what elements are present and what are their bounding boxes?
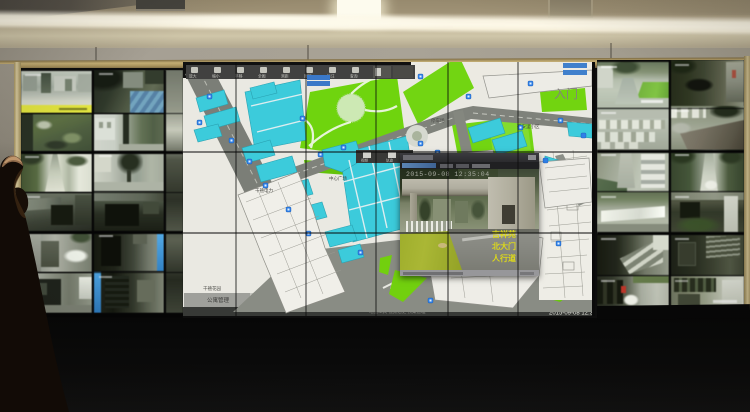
svg-text:停车场: 停车场 bbox=[431, 117, 445, 124]
svg-text:缩小: 缩小 bbox=[212, 74, 220, 79]
svg-text:轨迹: 轨迹 bbox=[386, 158, 394, 163]
svg-text:测距: 测距 bbox=[281, 74, 289, 79]
svg-text:千禧花园: 千禧花园 bbox=[203, 285, 221, 292]
svg-text:全图: 全图 bbox=[258, 74, 266, 79]
svg-text:视频: 视频 bbox=[361, 158, 369, 163]
svg-text:入门: 入门 bbox=[554, 86, 578, 101]
svg-text:公寓管理: 公寓管理 bbox=[207, 296, 230, 304]
svg-text:中心广场: 中心广场 bbox=[329, 175, 347, 182]
svg-text:查询: 查询 bbox=[350, 74, 358, 79]
svg-text:放大: 放大 bbox=[189, 74, 197, 79]
